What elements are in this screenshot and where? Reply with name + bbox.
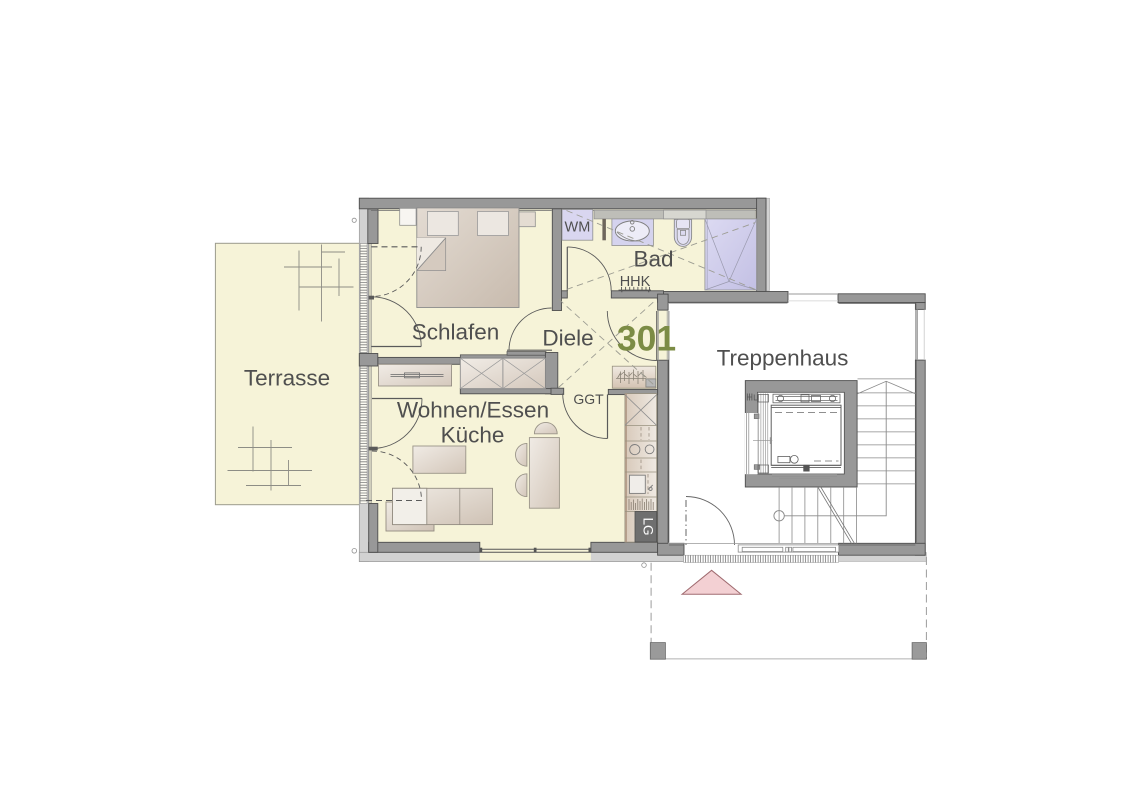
svg-text:Wohnen/Essen: Wohnen/Essen <box>397 398 549 423</box>
svg-text:LG: LG <box>641 517 656 535</box>
svg-text:HHK: HHK <box>620 274 651 290</box>
svg-text:Küche: Küche <box>441 423 505 448</box>
svg-text:WM: WM <box>565 220 591 236</box>
svg-text:GGT: GGT <box>573 391 604 407</box>
svg-text:301: 301 <box>617 319 676 359</box>
svg-text:Treppenhaus: Treppenhaus <box>717 346 849 371</box>
svg-text:Terrasse: Terrasse <box>244 366 330 391</box>
svg-text:Bad: Bad <box>633 247 673 272</box>
svg-text:Schlafen: Schlafen <box>412 320 500 345</box>
svg-text:Diele: Diele <box>542 326 593 351</box>
